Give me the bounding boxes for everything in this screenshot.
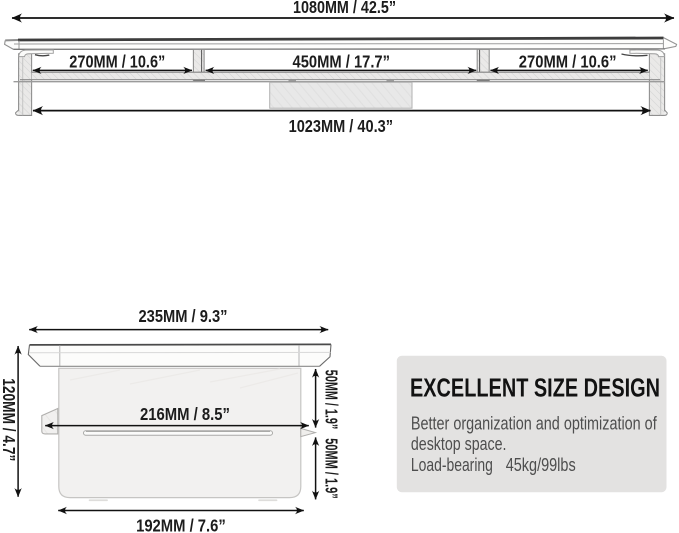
svg-text:50MM / 1.9”: 50MM / 1.9”: [321, 370, 341, 430]
svg-text:270MM / 10.6”: 270MM / 10.6”: [519, 52, 617, 72]
svg-text:50MM / 1.9”: 50MM / 1.9”: [321, 438, 341, 499]
svg-text:1023MM / 40.3”: 1023MM / 40.3”: [289, 116, 393, 136]
svg-text:216MM / 8.5”: 216MM / 8.5”: [140, 404, 230, 424]
svg-text:270MM / 10.6”: 270MM / 10.6”: [69, 52, 165, 72]
svg-text:45kg/99lbs: 45kg/99lbs: [506, 455, 576, 475]
svg-text:1080MM / 42.5”: 1080MM / 42.5”: [293, 0, 396, 17]
svg-text:192MM / 7.6”: 192MM / 7.6”: [136, 515, 226, 533]
svg-text:Load-bearing: Load-bearing: [411, 455, 493, 475]
svg-text:450MM / 17.7”: 450MM / 17.7”: [293, 52, 391, 72]
svg-text:desktop space.: desktop space.: [411, 434, 507, 454]
svg-text:235MM / 9.3”: 235MM / 9.3”: [139, 306, 228, 326]
svg-text:EXCELLENT SIZE DESIGN: EXCELLENT SIZE DESIGN: [410, 374, 660, 402]
svg-text:Better organization and optimi: Better organization and optimization of: [411, 413, 658, 433]
svg-text:120MM / 4.7”: 120MM / 4.7”: [0, 378, 19, 461]
